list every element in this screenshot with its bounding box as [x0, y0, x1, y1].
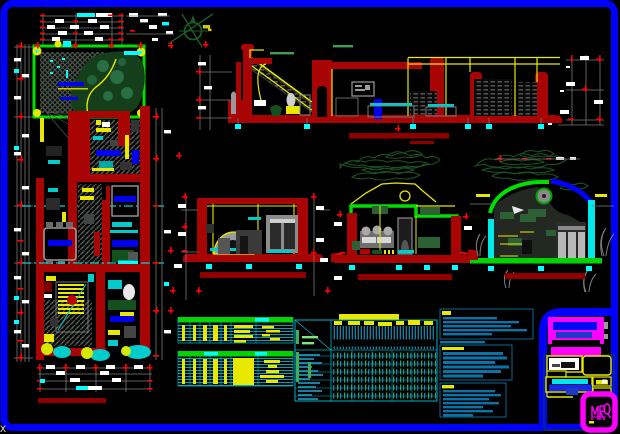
svg-text:X: X	[0, 424, 6, 434]
